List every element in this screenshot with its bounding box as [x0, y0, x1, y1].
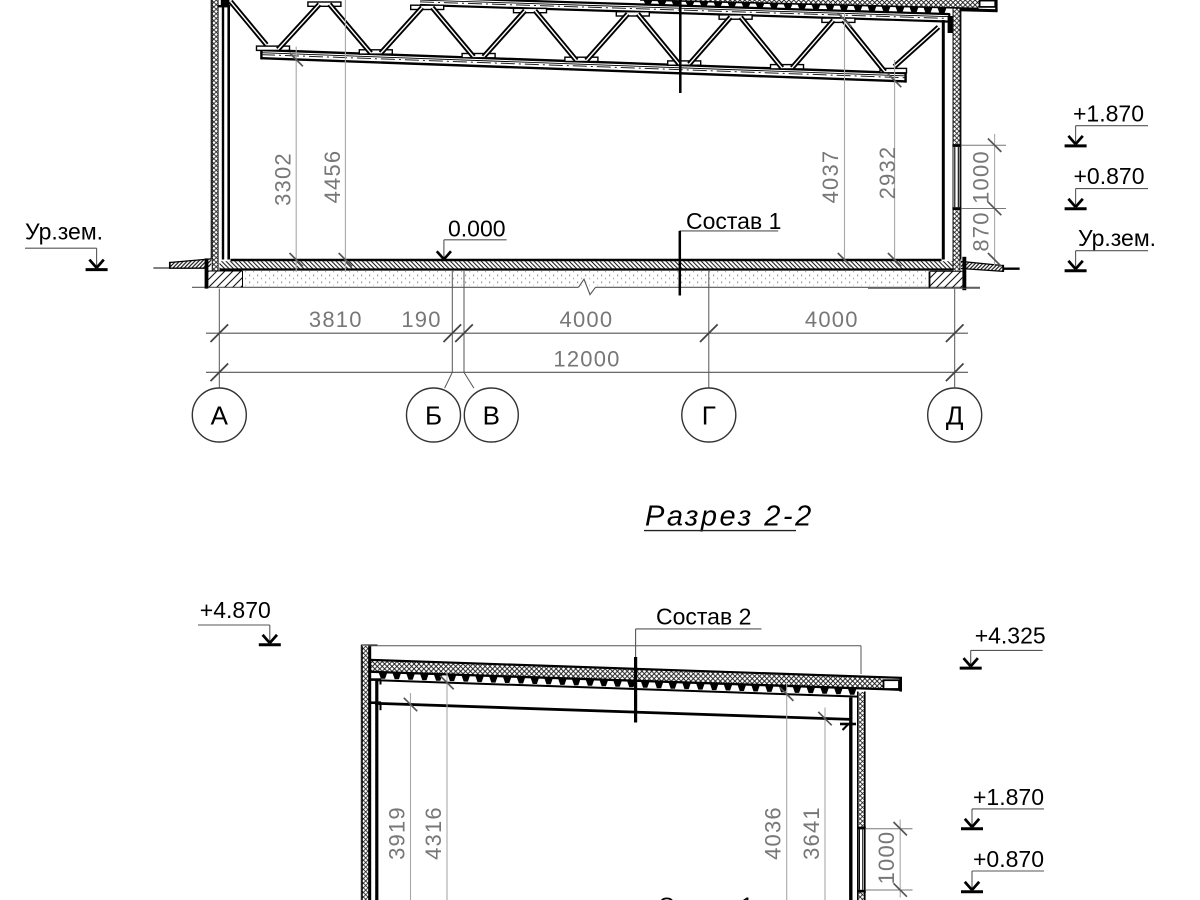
svg-text:1000: 1000 — [874, 831, 899, 885]
svg-text:Состав 1: Состав 1 — [686, 208, 781, 234]
svg-text:4316: 4316 — [421, 806, 446, 860]
svg-text:4036: 4036 — [761, 806, 786, 860]
svg-text:4000: 4000 — [805, 307, 859, 332]
svg-text:+0.870: +0.870 — [1074, 163, 1145, 189]
svg-text:+4.325: +4.325 — [975, 622, 1046, 648]
svg-text:Ур.зем.: Ур.зем. — [25, 218, 103, 244]
svg-text:Состав 2: Состав 2 — [656, 604, 751, 630]
svg-text:2932: 2932 — [875, 146, 900, 200]
svg-text:Г: Г — [702, 401, 716, 431]
svg-text:Д: Д — [946, 401, 964, 431]
svg-text:3641: 3641 — [799, 806, 824, 860]
svg-text:0.000: 0.000 — [448, 216, 506, 242]
svg-text:+4.870: +4.870 — [200, 597, 271, 623]
svg-text:+1.870: +1.870 — [973, 784, 1044, 810]
svg-text:190: 190 — [401, 307, 441, 332]
svg-text:Состав 1: Состав 1 — [658, 893, 753, 900]
svg-text:Б: Б — [425, 401, 442, 431]
svg-text:А: А — [211, 401, 229, 431]
svg-text:В: В — [483, 401, 500, 431]
svg-text:12000: 12000 — [553, 346, 620, 371]
svg-text:Ур.зем.: Ур.зем. — [1078, 225, 1156, 251]
svg-text:870: 870 — [969, 211, 994, 251]
svg-text:3810: 3810 — [309, 307, 363, 332]
svg-text:1000: 1000 — [969, 150, 994, 204]
svg-text:3919: 3919 — [385, 806, 410, 860]
svg-text:4037: 4037 — [818, 150, 843, 204]
svg-text:4456: 4456 — [320, 150, 345, 204]
svg-text:4000: 4000 — [560, 307, 614, 332]
svg-text:+1.870: +1.870 — [1073, 100, 1144, 126]
svg-text:Разрез 2-2: Разрез 2-2 — [645, 501, 814, 533]
svg-text:3302: 3302 — [271, 152, 296, 206]
svg-text:+0.870: +0.870 — [973, 846, 1044, 872]
